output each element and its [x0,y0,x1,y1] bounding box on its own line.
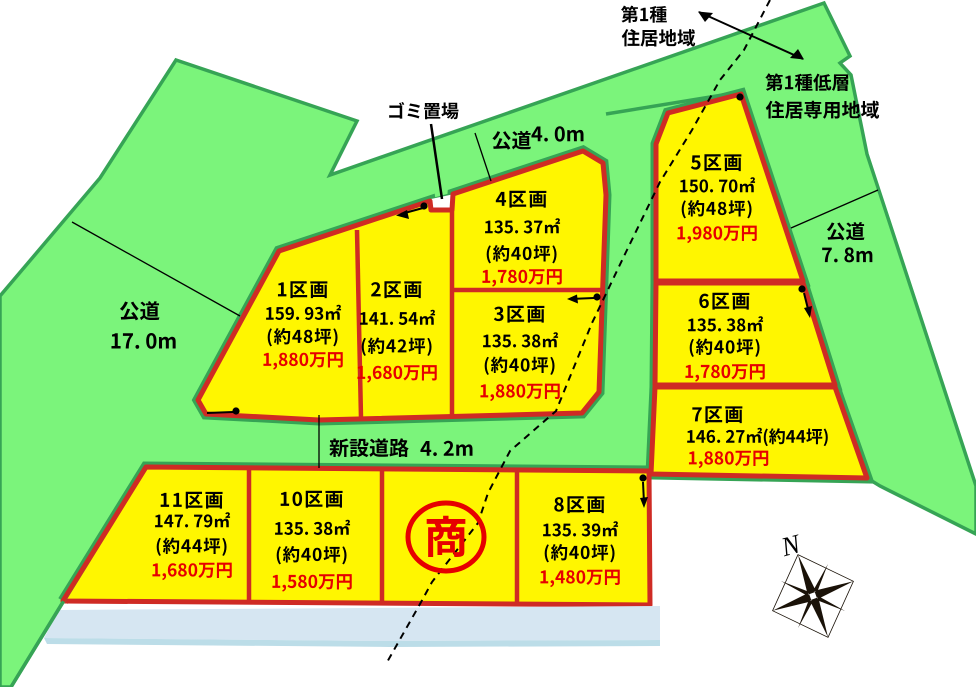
svg-text:N: N [777,528,805,562]
